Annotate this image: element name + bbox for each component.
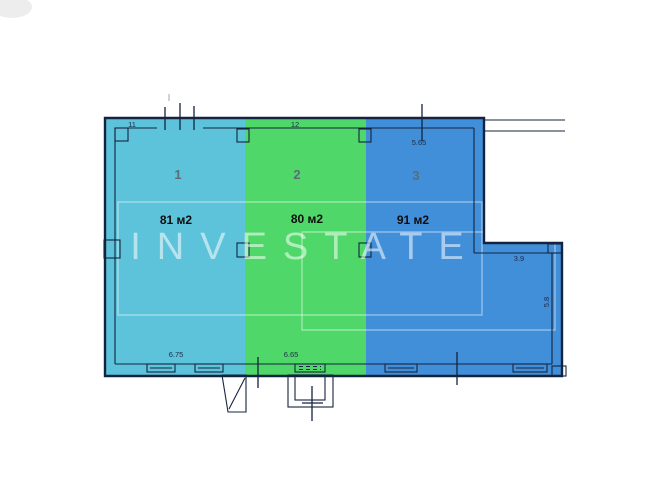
dimension-bottom-section1: 6.75 [169,350,184,359]
door-swing-line [229,378,245,409]
section-3-area-label: 91 м2 [397,213,430,227]
watermark-text: INVESTATE [130,226,480,268]
floor-plan-image: 1 2 3 81 м2 80 м2 91 м2 11 12 5.65 6.75 … [0,0,653,489]
section-1-number: 1 [174,167,181,182]
section-2-number: 2 [293,167,300,182]
section-3-number: 3 [412,168,419,183]
section-1-area-label: 81 м2 [160,213,193,227]
entrance-vestibule [222,375,246,412]
dimension-top-section2: 12 [291,120,299,129]
dimension-right-wall: 5.8 [542,297,551,307]
dimension-right-ledge: 3.9 [514,254,524,263]
entrance-steps-inner [295,375,325,400]
section-2-area-label: 80 м2 [291,212,324,226]
dimension-top-section1: 11 [128,120,136,129]
dimension-bottom-section2: 6.65 [284,350,299,359]
dimension-top-section3: 5.65 [412,138,427,147]
floor-plan: 1 2 3 81 м2 80 м2 91 м2 11 12 5.65 6.75 … [0,0,653,489]
corner-smudge [0,0,32,18]
